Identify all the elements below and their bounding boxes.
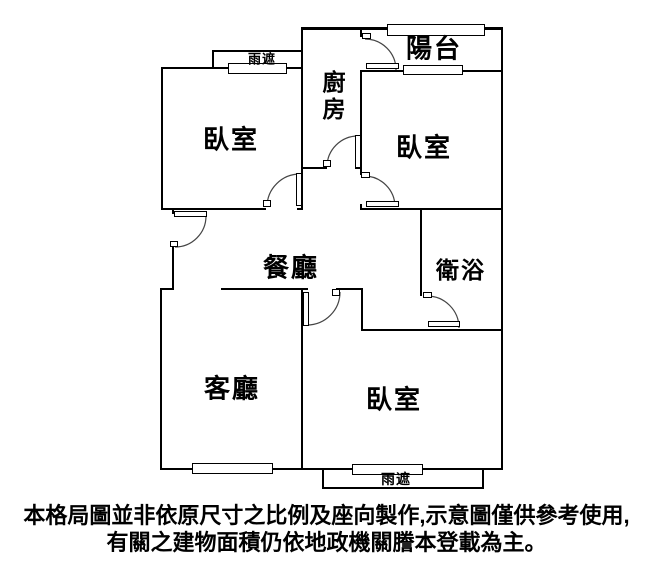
door-leaf-entry <box>174 211 207 217</box>
room-label-kitchen: 廚房 <box>315 70 349 124</box>
door-arc-kitchen <box>327 136 358 167</box>
rain-shield-bottom-label: 雨遮 <box>381 469 411 489</box>
door-jamb-entry <box>170 241 178 247</box>
door-leaf-bedroom1 <box>296 173 302 206</box>
door-leaf-bedroom2 <box>366 201 399 207</box>
disclaimer-line-2: 有關之建物面積仍依地政機關謄本登載為主。 <box>0 529 653 556</box>
room-label-living: 客廳 <box>204 369 260 406</box>
room-label-bedroom-bottom: 臥室 <box>366 380 422 417</box>
room-label-dining: 餐廳 <box>263 248 319 285</box>
door-leaf-kitchen <box>355 135 361 168</box>
door-leaf-bedroom3 <box>303 292 309 326</box>
room-label-bedroom-top-right: 臥室 <box>396 128 452 165</box>
door-arc-entry <box>175 216 206 247</box>
door-leaf-bathroom <box>428 321 460 327</box>
room-label-balcony: 陽台 <box>406 29 462 66</box>
room-label-bathroom: 衛浴 <box>436 251 486 285</box>
door-jamb-kitchen <box>323 160 331 167</box>
door-jamb-balcony <box>362 33 371 39</box>
disclaimer-line-1: 本格局圖並非依原尺寸之比例及座向製作,示意圖僅供參考使用, <box>0 502 653 529</box>
door-jamb-bathroom <box>423 292 432 298</box>
door-jamb-bedroom2 <box>361 172 370 178</box>
rain-shield-top-label: 雨遮 <box>248 49 276 68</box>
disclaimer: 本格局圖並非依原尺寸之比例及座向製作,示意圖僅供參考使用, 有關之建物面積仍依地… <box>0 502 653 556</box>
door-arc-bedroom3 <box>307 292 340 325</box>
door-jamb-bedroom1 <box>263 200 271 207</box>
floor-plan: 臥室 廚房 陽台 臥室 餐廳 衛浴 客廳 臥室 雨遮 雨遮 本格局圖並非依原尺寸… <box>0 0 653 570</box>
door-leaf-balcony <box>366 63 399 69</box>
room-label-bedroom-top-left: 臥室 <box>203 120 259 157</box>
door-jamb-bedroom3 <box>332 289 340 296</box>
